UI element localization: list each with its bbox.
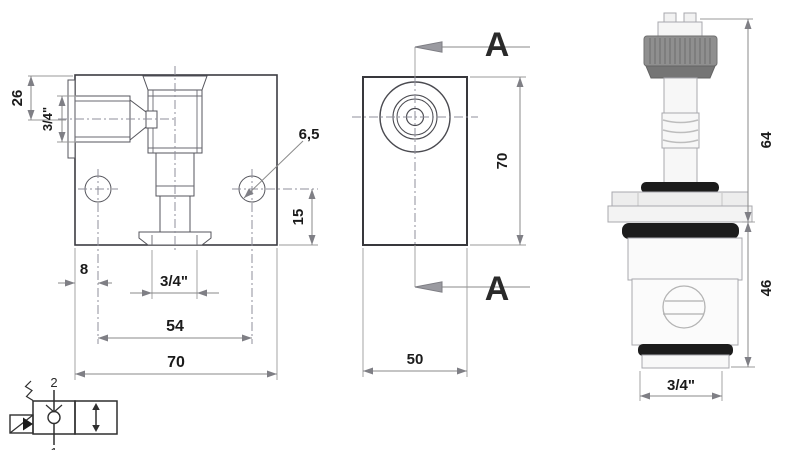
dim-46-label: 46 bbox=[758, 280, 775, 297]
section-arrow-top: A bbox=[415, 26, 530, 77]
flow-arrow-glyph bbox=[92, 403, 100, 432]
knurled-nut bbox=[644, 36, 717, 78]
side-view: A A 70 50 bbox=[352, 26, 530, 377]
technical-drawing-sheet: 26 3/4" 6,5 15 8 bbox=[0, 0, 800, 450]
dim-70-width-label: 70 bbox=[167, 354, 185, 371]
dim-15-label: 15 bbox=[290, 209, 307, 226]
hex-flange bbox=[608, 192, 752, 222]
o-ring-bottom bbox=[638, 344, 733, 356]
symbol-port-1-label: 1 bbox=[50, 445, 57, 450]
dim-15: 15 bbox=[279, 189, 318, 245]
dim-50-label: 50 bbox=[407, 351, 424, 368]
dim-54-label: 54 bbox=[166, 318, 184, 335]
dim-8: 8 bbox=[58, 248, 112, 290]
dim-hole-diameter-label: 6,5 bbox=[299, 126, 320, 143]
top-connector bbox=[658, 13, 702, 38]
dim-8-label: 8 bbox=[80, 261, 88, 278]
valve-stem bbox=[662, 78, 699, 183]
dim-54: 54 bbox=[98, 318, 252, 338]
dim-thread: 3/4" bbox=[640, 371, 722, 401]
hydraulic-symbol: 2 1 bbox=[10, 375, 117, 450]
dim-bottom-port: 3/4" bbox=[130, 250, 219, 299]
front-section-view: 26 3/4" 6,5 15 8 bbox=[9, 66, 319, 380]
solenoid-glyph bbox=[10, 415, 33, 433]
section-label-top: A bbox=[485, 26, 510, 64]
dim-hole-diameter: 6,5 bbox=[244, 126, 319, 198]
o-ring-top bbox=[641, 182, 719, 193]
dim-26-label: 26 bbox=[9, 90, 26, 107]
dim-70-height: 70 bbox=[470, 77, 526, 245]
dim-thread-label: 3/4" bbox=[667, 377, 695, 394]
spring-glyph bbox=[26, 381, 34, 401]
dim-side-port-label: 3/4" bbox=[40, 107, 55, 131]
dim-70-width: 70 bbox=[75, 248, 277, 380]
section-label-bottom: A bbox=[485, 270, 510, 308]
dim-bottom-port-label: 3/4" bbox=[160, 273, 188, 290]
valve-drawing-svg: 26 3/4" 6,5 15 8 bbox=[0, 0, 800, 450]
cartridge-body bbox=[628, 238, 742, 368]
dim-64-label: 64 bbox=[758, 131, 775, 148]
o-ring-middle bbox=[622, 223, 739, 239]
section-arrow-bottom: A bbox=[415, 245, 530, 308]
check-valve-glyph bbox=[46, 401, 62, 434]
dim-70-height-label: 70 bbox=[494, 153, 511, 170]
section-arrowhead-bottom bbox=[415, 282, 442, 292]
section-arrowhead-top bbox=[415, 42, 442, 52]
cartridge-photo: 64 46 3/4" bbox=[608, 13, 775, 401]
symbol-port-2-label: 2 bbox=[50, 375, 57, 390]
